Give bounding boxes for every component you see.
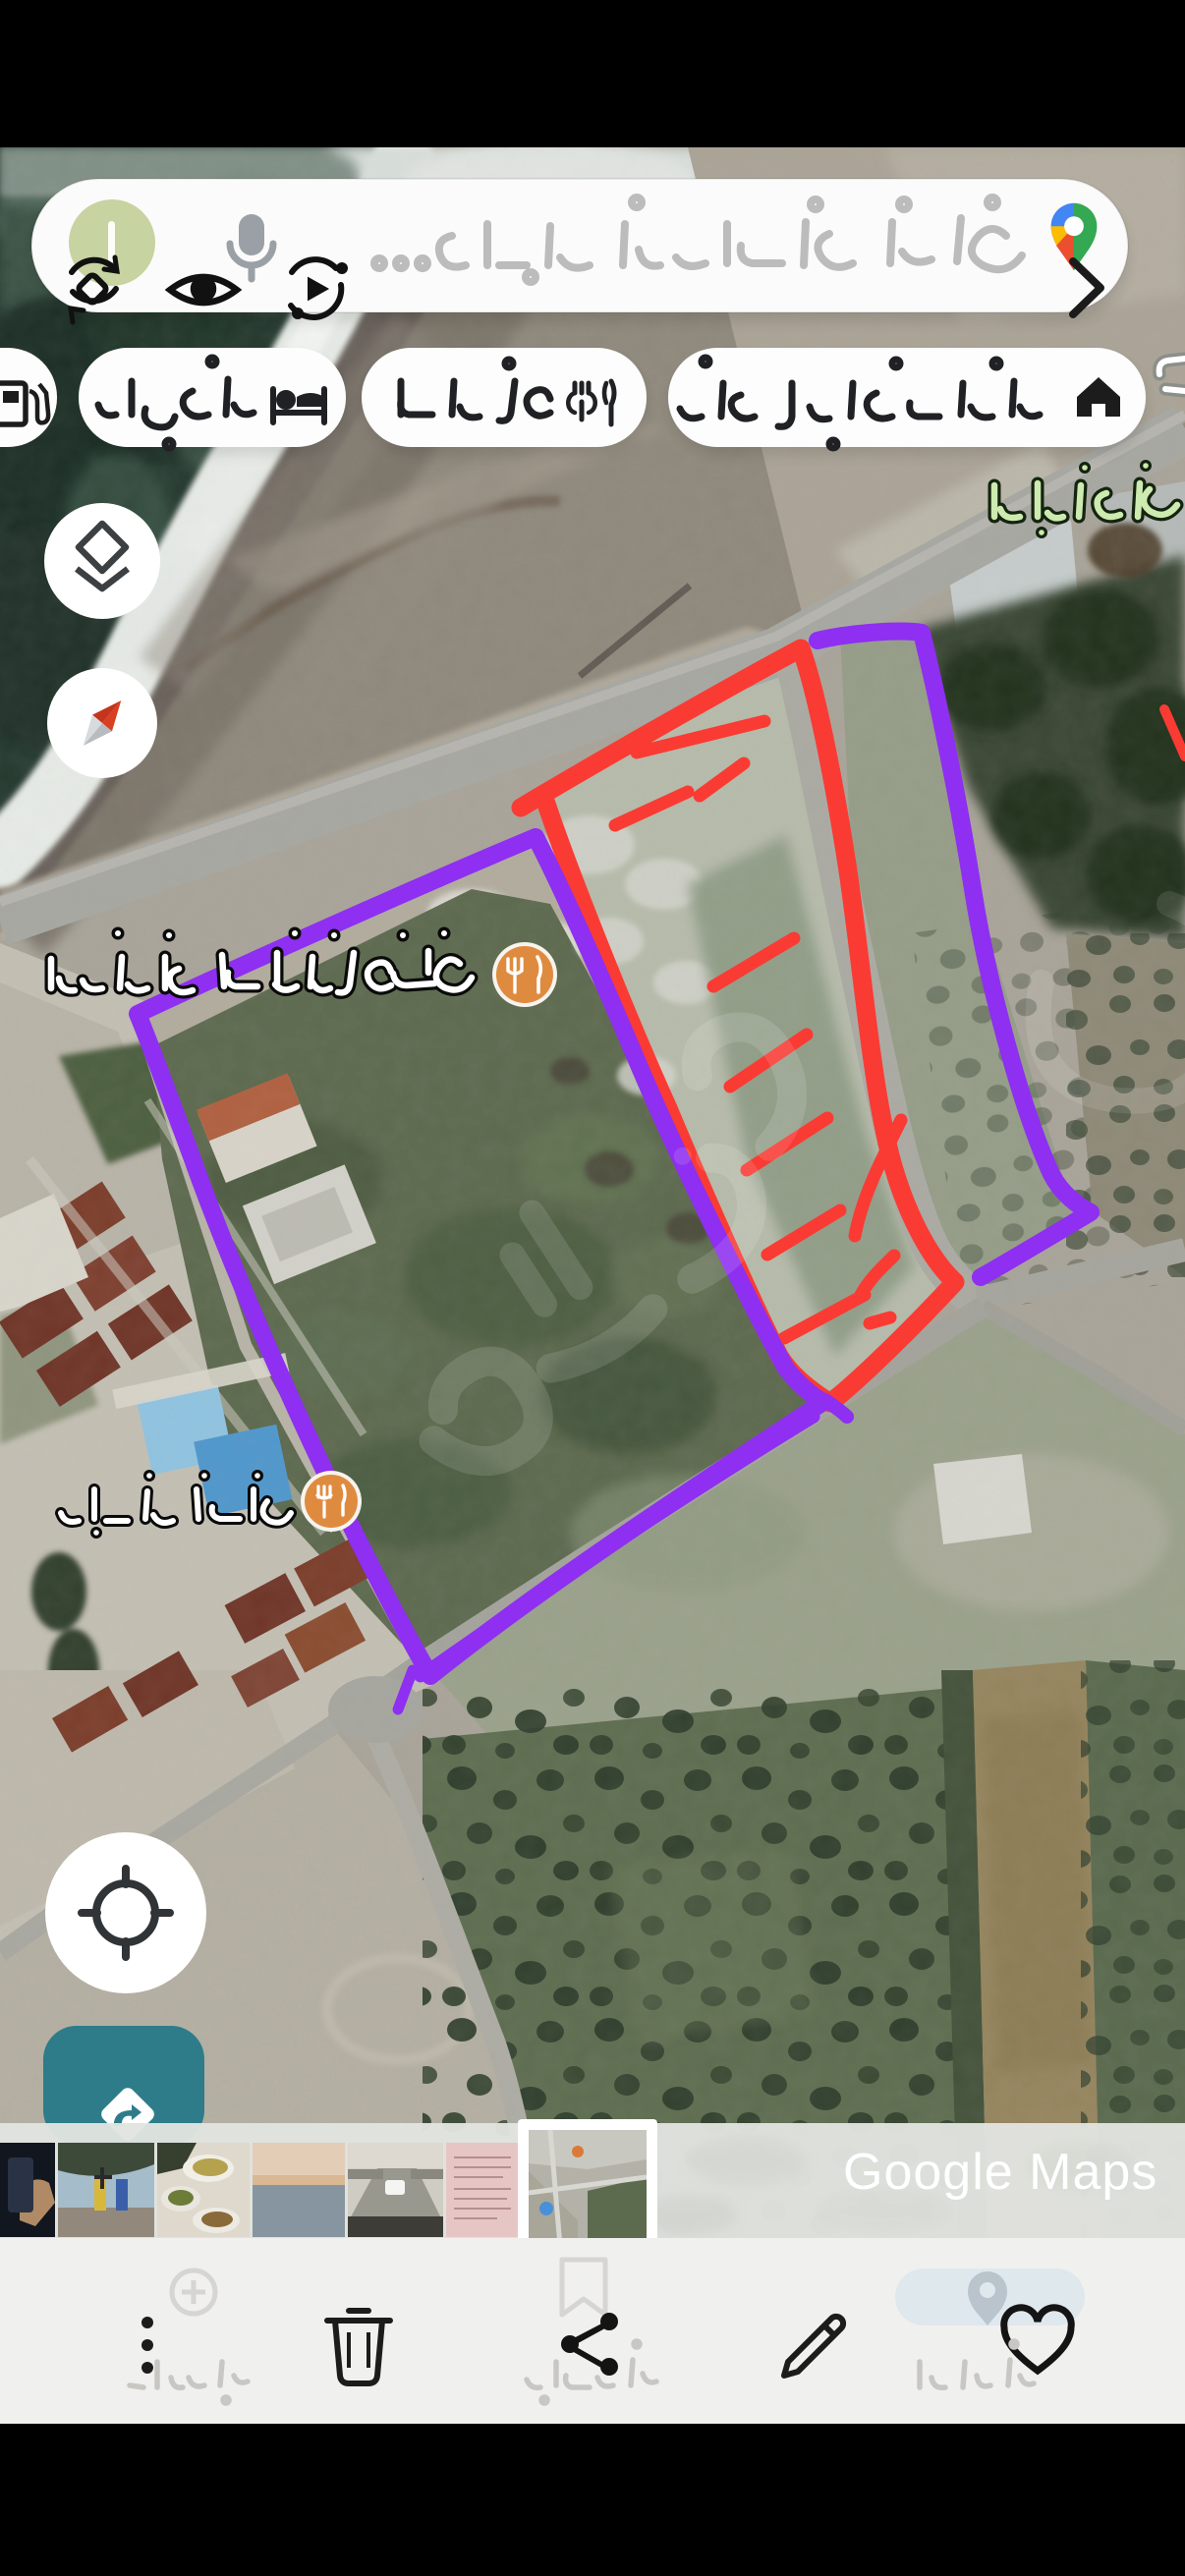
svg-text:Google Maps: Google Maps xyxy=(843,2144,1157,2201)
